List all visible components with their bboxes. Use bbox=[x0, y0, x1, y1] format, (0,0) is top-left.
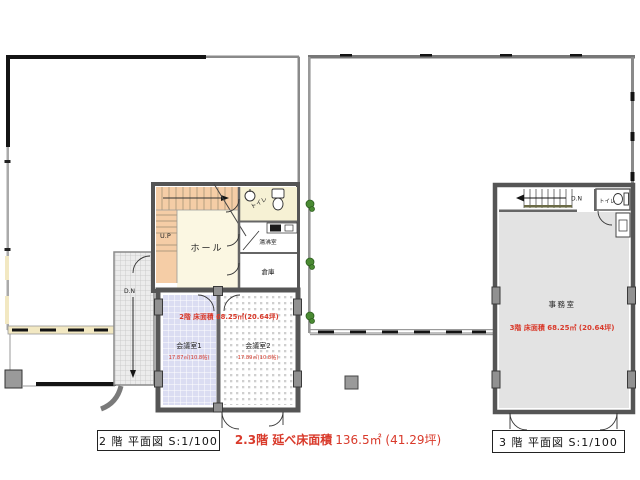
hall-label: ホール bbox=[190, 243, 223, 254]
toilet-label-3f: トイレ bbox=[599, 199, 616, 205]
caption-2f: 2 階 平面図 S:1/100 bbox=[97, 430, 220, 451]
sink-icon bbox=[245, 191, 255, 201]
toilet-icon bbox=[273, 198, 283, 210]
floor-plan-sheet: { "plan_2f": { "caption": "2 階 平面図 S:1/1… bbox=[0, 0, 640, 480]
total-floor-area: 2.3階 延べ床面積136.5㎡ (41.29坪) bbox=[228, 431, 448, 448]
service-block-2f: U.P トイレ bbox=[153, 184, 298, 292]
meeting-room-1-label: 会議室1 bbox=[176, 341, 201, 350]
interior-stair-3f: D.N bbox=[499, 189, 582, 212]
pillar bbox=[5, 370, 22, 388]
sink-basin-icon bbox=[270, 225, 281, 232]
stair-down-label-2f: D.N bbox=[124, 288, 135, 295]
office-doors bbox=[510, 413, 617, 430]
total-floor-area-value: 136.5㎡ (41.29坪) bbox=[335, 433, 441, 447]
floor-area-label-3f: 3階 床面積 68.25㎡ (20.64坪) bbox=[510, 323, 615, 332]
office-room bbox=[499, 212, 629, 408]
storage-label: 倉庫 bbox=[262, 267, 276, 276]
exterior-stair-2f: D.N bbox=[114, 252, 154, 385]
floor-plan-drawing: D.N bbox=[0, 0, 640, 480]
meeting-room-2-label: 会議室2 bbox=[245, 341, 270, 350]
window-band-2f bbox=[8, 326, 115, 334]
stair-up-label: U.P bbox=[160, 232, 171, 240]
plan-3f: D.N トイレ bbox=[306, 54, 636, 430]
office-label: 事務室 bbox=[549, 299, 576, 309]
caption-3f: 3 階 平面図 S:1/100 bbox=[492, 430, 625, 453]
stair-down-label-3f: D.N bbox=[571, 196, 582, 203]
toilet-tank-icon bbox=[624, 193, 629, 205]
curved-wall bbox=[101, 386, 121, 409]
office-block-3f: D.N トイレ bbox=[492, 185, 636, 430]
meeting-room-2-area: 17.89㎡(10.8帖) bbox=[238, 353, 279, 361]
meeting-room-2 bbox=[221, 295, 295, 405]
caption-2f-text: 2 階 平面図 S:1/100 bbox=[99, 433, 218, 449]
caption-3f-text: 3 階 平面図 S:1/100 bbox=[499, 434, 618, 450]
toilet-tank-icon bbox=[272, 189, 284, 198]
meeting-room-1-area: 17.87㎡(10.8帖) bbox=[169, 353, 210, 361]
pillar bbox=[345, 376, 358, 389]
total-floor-area-label: 2.3階 延べ床面積 bbox=[235, 433, 332, 447]
kitchenette-label: 湯沸室 bbox=[259, 238, 277, 246]
plan-2f: D.N bbox=[5, 55, 302, 429]
meeting-block-2f: 2階 床面積 68.25㎡(20.64坪) 会議室1 17.87㎡(10.8帖)… bbox=[155, 287, 302, 430]
terrace-2f bbox=[5, 334, 121, 409]
floor-area-label-2f: 2階 床面積 68.25㎡(20.64坪) bbox=[179, 312, 278, 321]
sink-icon bbox=[616, 213, 630, 237]
